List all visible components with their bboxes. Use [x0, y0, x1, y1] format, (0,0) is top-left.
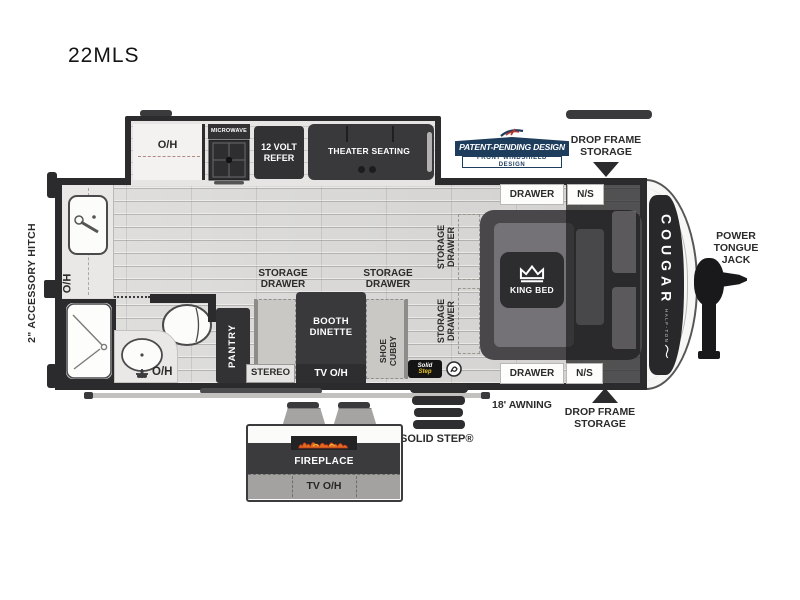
flame-icon: [295, 438, 353, 449]
fireplace-label: FIREPLACE: [274, 454, 374, 470]
keystone-swoosh-icon: [497, 126, 527, 138]
drawer-label-top: DRAWER: [500, 184, 564, 205]
crown-icon: [518, 264, 546, 283]
fireplace-slide-dashline: [356, 476, 357, 497]
shower: [62, 299, 116, 383]
bathroom-wall: [208, 294, 216, 322]
tongue-jack-hub: [694, 258, 724, 306]
fireplace-tv-overhead: TV O/H: [248, 474, 400, 499]
floorplan-page: 22MLS COUGAR HALF-TON POWER TONGUE JACK …: [0, 0, 800, 600]
patent-badge: PATENT-PENDING DESIGN FRONT WINDSHIELD D…: [455, 126, 569, 174]
microwave: MICROWAVE: [208, 124, 250, 139]
theater-cupholder-icon: [358, 166, 365, 173]
microwave-label: MICROWAVE: [211, 128, 247, 134]
accessory-hitch-label: 2" ACCESSORY HITCH: [26, 208, 40, 358]
patent-banner: PATENT-PENDING DESIGN: [455, 137, 569, 156]
stereo: STEREO: [246, 364, 295, 383]
theater-armrest: [427, 132, 432, 172]
king-bed-tag: KING BED: [500, 252, 564, 308]
storage-drawer-label: STORAGE DRAWER: [352, 266, 424, 292]
drawer-label-bottom: DRAWER: [500, 363, 564, 384]
theater-backrest-divider: [346, 126, 348, 142]
storage-drawer-label: STORAGE DRAWER: [250, 266, 316, 292]
brand-sub: HALF-TON: [664, 309, 669, 343]
patent-banner-text: PATENT-PENDING DESIGN: [459, 143, 565, 153]
drop-frame-storage-top-label: DROP FRAME STORAGE: [558, 134, 654, 160]
page-title: 22MLS: [68, 44, 140, 68]
patent-subbanner: FRONT WINDSHIELD DESIGN: [462, 156, 562, 168]
kitchen-overhead-label: O/H: [62, 266, 75, 302]
solid-step-label: SOLID STEP®: [400, 433, 474, 445]
tv-overhead: TV O/H: [296, 364, 366, 383]
dinette-chair: [333, 402, 375, 426]
certification-logo-icon: [446, 361, 462, 377]
accessory-hitch-receiver: [44, 280, 57, 298]
solidstep-logo-line2: Step: [418, 369, 431, 375]
king-bed-label: KING BED: [510, 286, 554, 296]
nightstand-label-bottom: N/S: [566, 363, 603, 384]
storage-bin: [576, 229, 604, 325]
drop-frame-storage-area: [566, 185, 640, 383]
brand-name: COUGAR: [659, 214, 675, 306]
solidstep-logo-badge: Solid Step: [408, 360, 442, 378]
nightstand-label-top: N/S: [567, 184, 604, 205]
storage-bin: [612, 211, 636, 273]
pantry-label: PANTRY: [227, 314, 239, 378]
booth-dinette: BOOTH DINETTE: [296, 292, 366, 364]
faucet-icon: [136, 368, 148, 380]
fireplace-slide: FIREPLACE TV O/H: [246, 424, 403, 502]
storage-drawer-outline: [458, 214, 480, 280]
shoe-cubby-label: SHOE CUBBY: [379, 325, 399, 377]
theater-backrest-divider: [392, 126, 394, 142]
storage-drawer-outline: [458, 288, 480, 354]
awning-rail-end: [481, 392, 490, 399]
patent-subbanner-text: FRONT WINDSHIELD DESIGN: [463, 155, 561, 168]
storage-drawer-label-vertical: STORAGE DRAWER: [435, 288, 457, 354]
theater-cupholder-icon: [369, 166, 376, 173]
theater-seating: THEATER SEATING: [308, 124, 434, 180]
brand-badge: COUGAR HALF-TON: [649, 195, 684, 375]
entry-steps: [410, 384, 468, 430]
roof-rail: [566, 110, 652, 119]
fireplace-insert: [291, 436, 357, 450]
kitchen-sink: [67, 194, 109, 256]
drop-frame-storage-bottom-label: DROP FRAME STORAGE: [552, 406, 648, 432]
awning-rail-end: [84, 392, 93, 399]
cougar-swoosh-icon: [662, 344, 671, 360]
dinette-chair: [282, 402, 324, 426]
drop-arrow-down-icon: [593, 162, 619, 177]
storage-drawer-label-vertical: STORAGE DRAWER: [435, 214, 457, 280]
tongue-jack-foot: [698, 351, 720, 359]
overhead-cabinet-dashline: [138, 156, 200, 157]
overhead-cabinet-label: O/H: [158, 139, 178, 151]
theater-seating-label: THEATER SEATING: [312, 142, 426, 162]
pocket-door-dashline: [114, 296, 150, 298]
fireplace-slide-dashline: [292, 476, 293, 497]
awning-label: 18' AWNING: [492, 400, 552, 412]
range-cooktop-icon: [208, 139, 250, 185]
drop-arrow-up-icon: [592, 388, 618, 403]
kitchen-overhead-cabinet: O/H: [133, 124, 205, 180]
bathroom-wall: [150, 294, 216, 303]
refrigerator: 12 VOLT REFER: [254, 126, 304, 179]
bath-overhead-label: O/H: [152, 366, 172, 379]
tongue-jack-post: [702, 300, 716, 354]
tongue-jack-handle: [721, 272, 747, 287]
storage-bin: [612, 287, 636, 349]
